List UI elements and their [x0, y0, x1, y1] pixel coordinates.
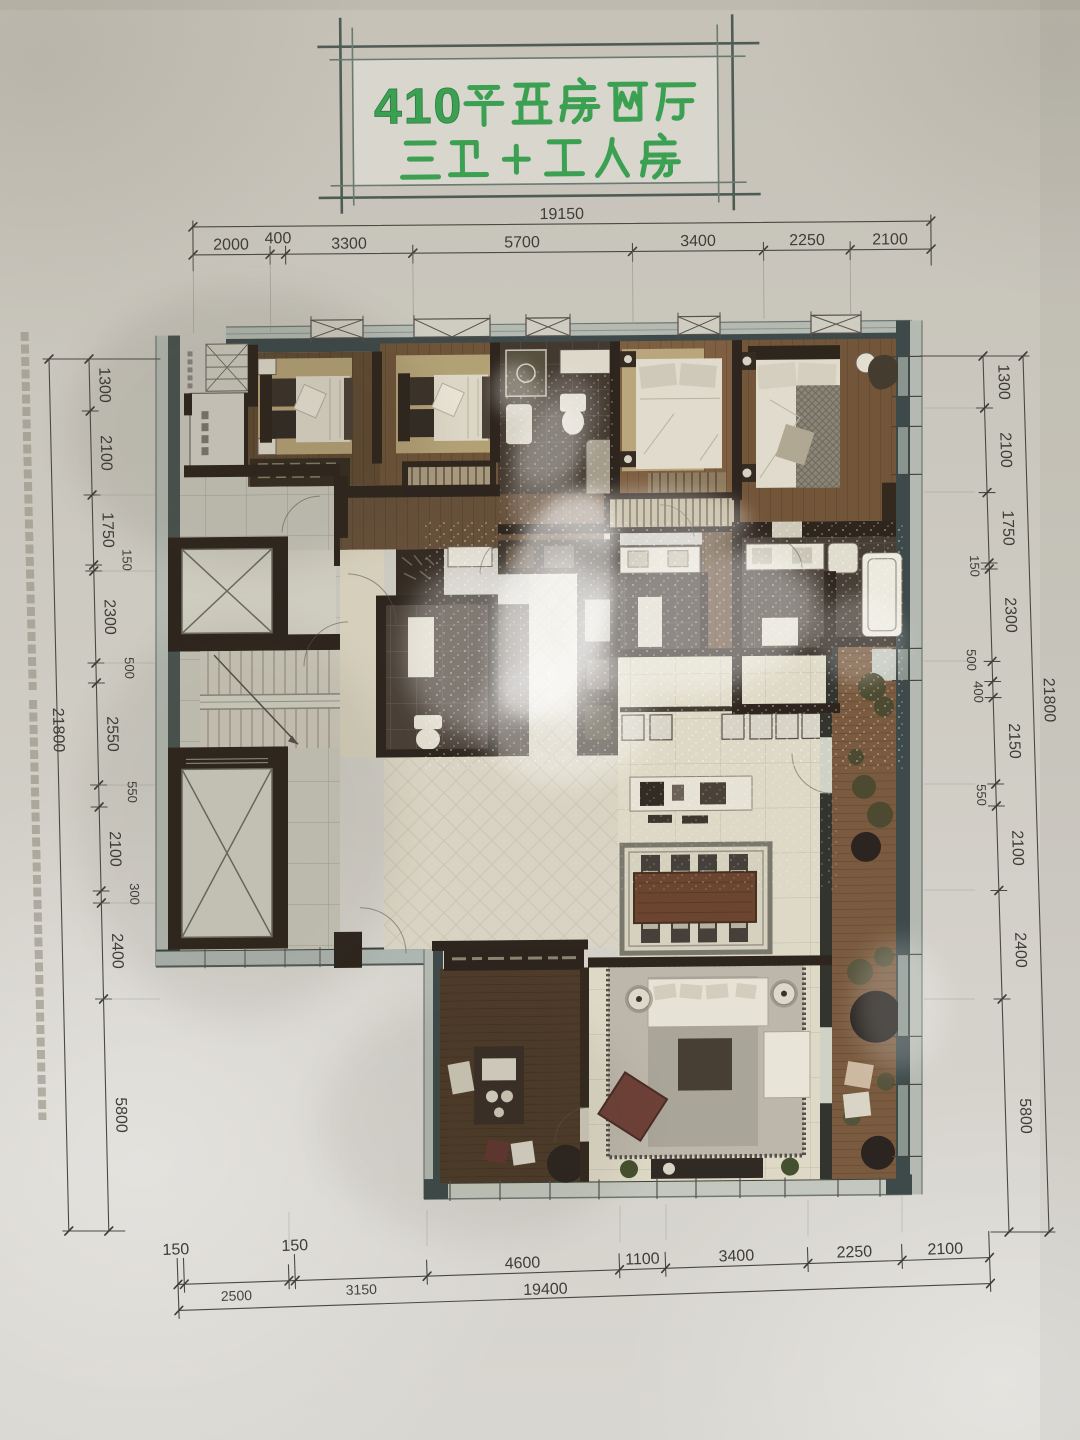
svg-text:2300: 2300	[1001, 597, 1019, 633]
svg-text:2400: 2400	[108, 933, 126, 969]
svg-text:2250: 2250	[836, 1243, 872, 1261]
svg-text:550: 550	[125, 781, 140, 803]
svg-text:150: 150	[281, 1237, 308, 1255]
svg-text:2100: 2100	[872, 231, 908, 248]
svg-text:1300: 1300	[95, 367, 113, 403]
svg-text:1100: 1100	[625, 1250, 660, 1268]
svg-text:3400: 3400	[680, 233, 716, 250]
svg-text:4600: 4600	[504, 1254, 540, 1272]
svg-text:2100: 2100	[97, 435, 115, 471]
svg-text:19400: 19400	[523, 1281, 568, 1299]
svg-text:3400: 3400	[718, 1247, 754, 1265]
svg-text:2400: 2400	[1011, 932, 1029, 968]
svg-text:1750: 1750	[98, 512, 116, 548]
svg-text:410: 410	[374, 78, 464, 135]
svg-text:2100: 2100	[106, 831, 124, 867]
svg-text:19150: 19150	[539, 206, 584, 223]
svg-text:21800: 21800	[1040, 678, 1058, 723]
svg-text:2000: 2000	[213, 236, 249, 253]
svg-text:400: 400	[971, 681, 987, 703]
svg-text:5800: 5800	[1016, 1098, 1034, 1134]
svg-text:2500: 2500	[221, 1287, 253, 1304]
svg-text:5800: 5800	[112, 1097, 130, 1133]
svg-text:2100: 2100	[996, 432, 1014, 468]
svg-text:1750: 1750	[999, 510, 1017, 546]
svg-text:2100: 2100	[927, 1240, 963, 1258]
svg-text:2550: 2550	[103, 716, 121, 752]
svg-text:500: 500	[964, 649, 980, 671]
svg-text:3300: 3300	[331, 236, 367, 253]
svg-text:150: 150	[967, 555, 983, 577]
svg-text:1300: 1300	[994, 364, 1012, 400]
svg-text:400: 400	[265, 230, 292, 247]
svg-text:550: 550	[974, 784, 990, 806]
svg-text:2100: 2100	[1008, 830, 1026, 866]
svg-text:300: 300	[127, 883, 142, 905]
svg-text:21800: 21800	[49, 708, 67, 753]
svg-text:5700: 5700	[504, 234, 540, 251]
svg-text:150: 150	[162, 1241, 189, 1259]
svg-text:2250: 2250	[789, 232, 825, 249]
svg-text:500: 500	[122, 657, 137, 679]
svg-text:150: 150	[119, 549, 134, 571]
svg-text:2150: 2150	[1005, 723, 1023, 759]
svg-text:2300: 2300	[100, 599, 118, 635]
svg-text:3150: 3150	[345, 1281, 377, 1298]
